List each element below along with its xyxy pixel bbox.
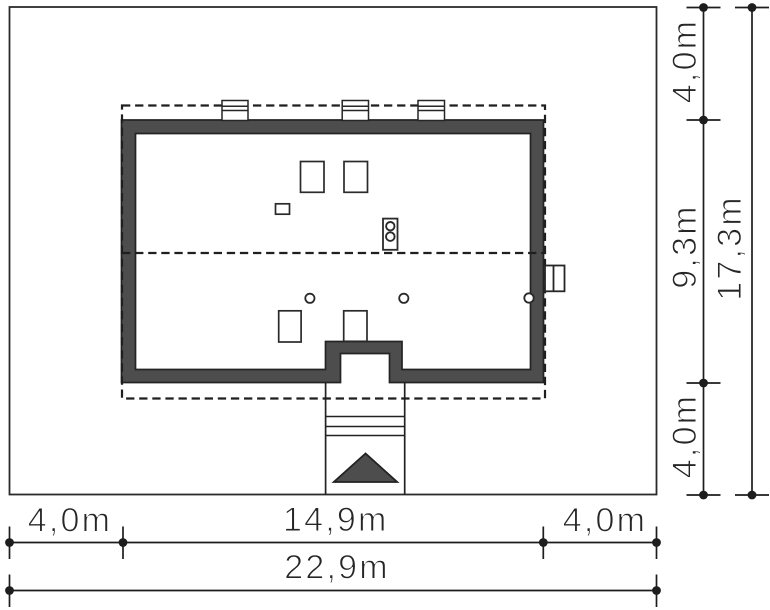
- svg-text:4,0m: 4,0m: [666, 19, 704, 103]
- svg-text:22,9m: 22,9m: [284, 549, 390, 587]
- svg-text:9,3m: 9,3m: [666, 204, 704, 288]
- svg-text:4,0m: 4,0m: [28, 502, 112, 540]
- svg-text:4,0m: 4,0m: [563, 502, 647, 540]
- svg-text:4,0m: 4,0m: [666, 394, 704, 478]
- svg-text:17,3m: 17,3m: [711, 195, 749, 301]
- svg-text:14,9m: 14,9m: [283, 501, 389, 539]
